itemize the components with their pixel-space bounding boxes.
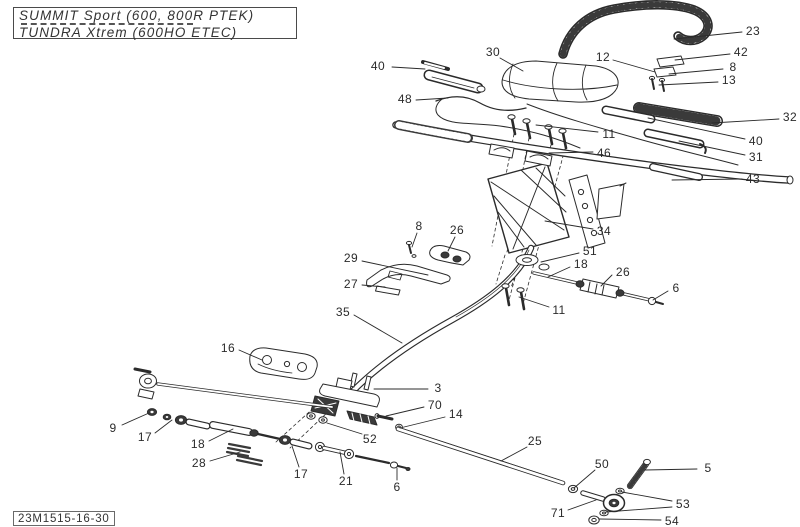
callout-23: 23 (746, 25, 760, 37)
leader-line (599, 519, 661, 520)
part-support-arm (367, 264, 451, 295)
leader-line (340, 452, 344, 474)
callout-25: 25 (528, 435, 542, 447)
callout-16: 16 (221, 342, 235, 354)
leader-line (386, 407, 424, 416)
sheet-number-text: 23M1515-16-30 (18, 513, 110, 525)
leader-line (412, 233, 417, 247)
leader-line (675, 54, 730, 60)
part-riser-block (488, 163, 605, 253)
callout-17: 17 (138, 431, 152, 443)
callout-53: 53 (676, 498, 690, 510)
callout-28: 28 (192, 457, 206, 469)
callout-42: 42 (734, 46, 748, 58)
part-column-bolts (502, 284, 524, 309)
callout-13: 13 (722, 74, 736, 86)
callout-52: 52 (363, 433, 377, 445)
part-grab-strap (563, 5, 708, 54)
callout-43: 43 (746, 173, 760, 185)
callout-5: 5 (704, 462, 711, 474)
part-bar-pads (606, 108, 717, 177)
callout-26: 26 (616, 266, 630, 278)
parts-artwork (0, 0, 800, 527)
leader-line (672, 179, 742, 180)
part-gauge-pod (502, 61, 618, 102)
leader-line (327, 423, 362, 434)
part-flag-plate (597, 183, 626, 219)
callout-18: 18 (191, 438, 205, 450)
leader-line (622, 492, 672, 501)
leader-line (501, 447, 527, 461)
callout-30: 30 (486, 46, 500, 58)
leader-line (210, 452, 240, 461)
callout-3: 3 (434, 382, 441, 394)
part-handlebar (396, 125, 793, 184)
callout-11: 11 (552, 304, 565, 316)
callout-70: 70 (428, 399, 442, 411)
callout-35: 35 (336, 306, 350, 318)
part-lower-arm-hardware (568, 459, 650, 524)
leader-line (209, 429, 233, 441)
leader-line (155, 420, 172, 433)
callout-9: 9 (109, 422, 116, 434)
callout-26: 26 (450, 224, 464, 236)
leader-line (392, 67, 425, 69)
leader-line (669, 69, 723, 74)
callout-17: 17 (294, 468, 308, 480)
callout-32: 32 (783, 111, 797, 123)
callout-21: 21 (339, 475, 353, 487)
leader-line (548, 267, 570, 277)
callout-54: 54 (665, 515, 679, 527)
part-steering-column (350, 248, 531, 394)
part-left-grip (423, 62, 485, 92)
leader-line (645, 469, 697, 470)
callout-11: 11 (602, 128, 615, 140)
leader-line (659, 82, 718, 85)
leader-line (568, 500, 596, 510)
leader-line (292, 446, 299, 467)
part-column-link (534, 273, 663, 305)
callout-29: 29 (344, 252, 358, 264)
leader-line (354, 315, 402, 343)
callout-14: 14 (449, 408, 463, 420)
callout-12: 12 (596, 51, 610, 63)
callout-18: 18 (574, 258, 588, 270)
model-name-line2: TUNDRA Xtrem (600HO ETEC) (19, 26, 296, 40)
leader-line (122, 413, 149, 425)
part-support-plate (250, 348, 318, 380)
callout-27: 27 (344, 278, 358, 290)
callout-6: 6 (393, 481, 400, 493)
leader-line (400, 417, 445, 428)
callout-50: 50 (595, 458, 609, 470)
sheet-number: 23M1515-16-30 (13, 511, 115, 526)
diagram-canvas: 4030482312428133211404631433482629273551… (0, 0, 800, 527)
leader-line (613, 60, 655, 72)
callout-8: 8 (415, 220, 422, 232)
model-callout-box: SUMMIT Sport (600, 800R PTEK) TUNDRA Xtr… (13, 7, 297, 39)
callout-48: 48 (398, 93, 412, 105)
part-gauge-bracket (406, 241, 470, 265)
callout-6: 6 (672, 282, 679, 294)
leader-line (574, 470, 595, 488)
callout-46: 46 (597, 147, 611, 159)
callout-71: 71 (551, 507, 565, 519)
leader-line (679, 141, 745, 155)
callout-34: 34 (597, 225, 611, 237)
model-name-line1: SUMMIT Sport (600, 800R PTEK) (19, 9, 296, 23)
callout-40: 40 (749, 135, 763, 147)
callout-8: 8 (729, 61, 736, 73)
leader-line (653, 291, 668, 300)
callout-31: 31 (749, 151, 763, 163)
callout-40: 40 (371, 60, 385, 72)
callout-51: 51 (583, 245, 597, 257)
